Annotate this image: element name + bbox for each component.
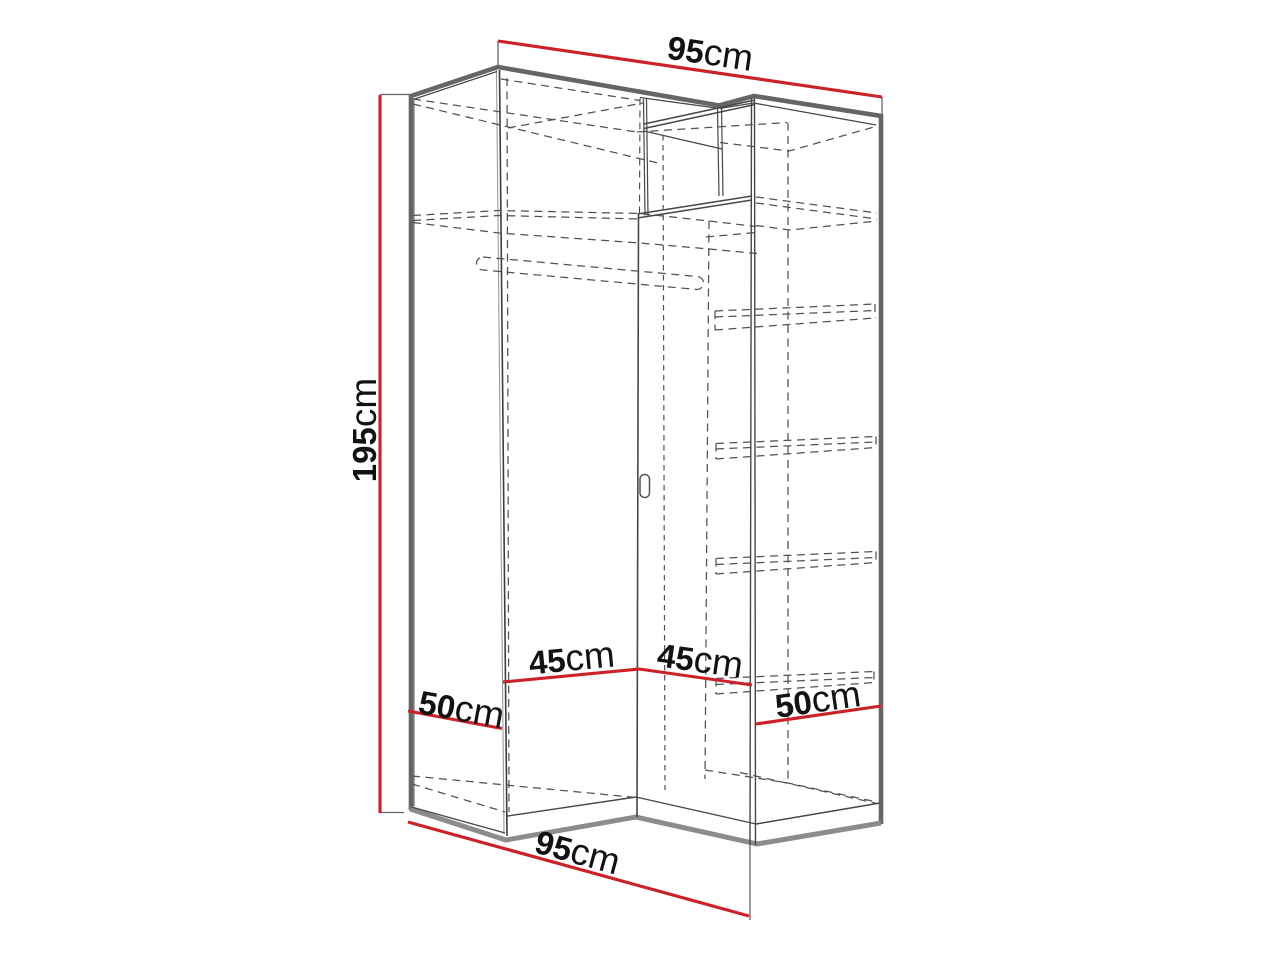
svg-text:95cm: 95cm	[531, 820, 625, 882]
svg-text:50cm: 50cm	[416, 681, 508, 737]
svg-text:45cm: 45cm	[655, 633, 746, 686]
svg-text:45cm: 45cm	[527, 633, 617, 682]
svg-text:95cm: 95cm	[665, 26, 756, 79]
svg-text:195cm: 195cm	[343, 378, 384, 482]
